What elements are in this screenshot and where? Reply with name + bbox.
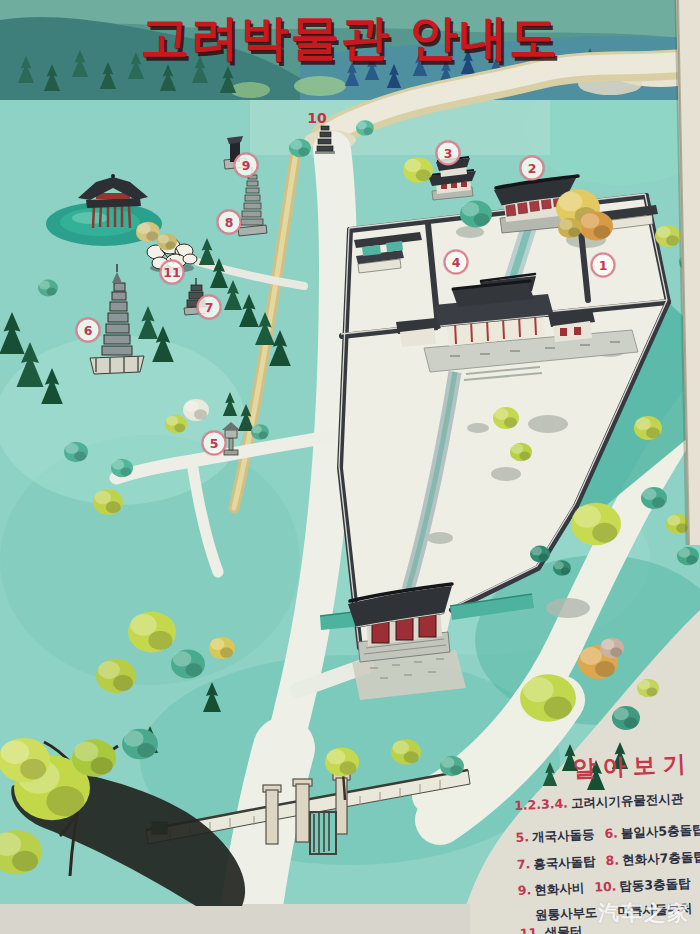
map-marker-6: 6	[76, 318, 101, 343]
legend-num: 1.2.3.4.	[514, 796, 568, 815]
map-marker-2: 2	[520, 156, 545, 181]
legend-num: 10.	[594, 879, 617, 897]
legend-label: 현화사비	[534, 880, 585, 899]
legend-label: 흥국사돌탑	[533, 854, 596, 874]
legend-num: 6.	[604, 826, 618, 844]
legend-row: 1.2.3.4.고려시기유물전시관	[514, 791, 684, 815]
legend-row: 11.샘물터	[519, 923, 582, 934]
legend-label: 현화사7층돌탑	[622, 849, 700, 870]
legend-label: 개국사돌등	[532, 827, 595, 847]
map-marker-1: 1	[591, 253, 616, 278]
map-marker-11: 11	[160, 260, 185, 285]
legend-label: 원통사부도	[535, 904, 598, 924]
legend-label: 탑동3층돌탑	[619, 875, 691, 895]
map-marker-4: 4	[444, 250, 469, 275]
legend-num: 9.	[518, 882, 532, 900]
photo-of-painted-map: 고려박물관 안내도 1 2 3 4 5 6 7 8 9 10 11 알아보기 1…	[0, 0, 700, 934]
legend-label: 고려시기유물전시관	[571, 791, 684, 813]
watermark-autohome: 汽车之家	[598, 899, 690, 927]
map-marker-3: 3	[436, 141, 461, 166]
legend-row: 7.흥국사돌탑 8.현화사7층돌탑	[516, 849, 700, 874]
wall-gate	[263, 773, 350, 854]
legend-num: 7.	[516, 856, 530, 874]
map-title: 고려박물관 안내도	[0, 6, 700, 70]
map-marker-10: 10	[305, 106, 330, 131]
legend-label: 불일사5층돌탑	[621, 822, 700, 843]
legend-num: 5.	[515, 829, 529, 847]
legend-num: 8.	[605, 852, 619, 870]
legend-label: 샘물터	[545, 923, 583, 934]
map-marker-5: 5	[202, 431, 227, 456]
legend-row: 5.개국사돌등 6.불일사5층돌탑	[515, 822, 700, 847]
legend-row: 9.현화사비 10.탑동3층돌탑	[518, 875, 691, 900]
legend-num: 11.	[519, 925, 542, 934]
map-marker-8: 8	[217, 210, 242, 235]
map-marker-9: 9	[234, 153, 259, 178]
legend-title: 알아보기	[572, 748, 693, 784]
map-marker-7: 7	[197, 295, 222, 320]
